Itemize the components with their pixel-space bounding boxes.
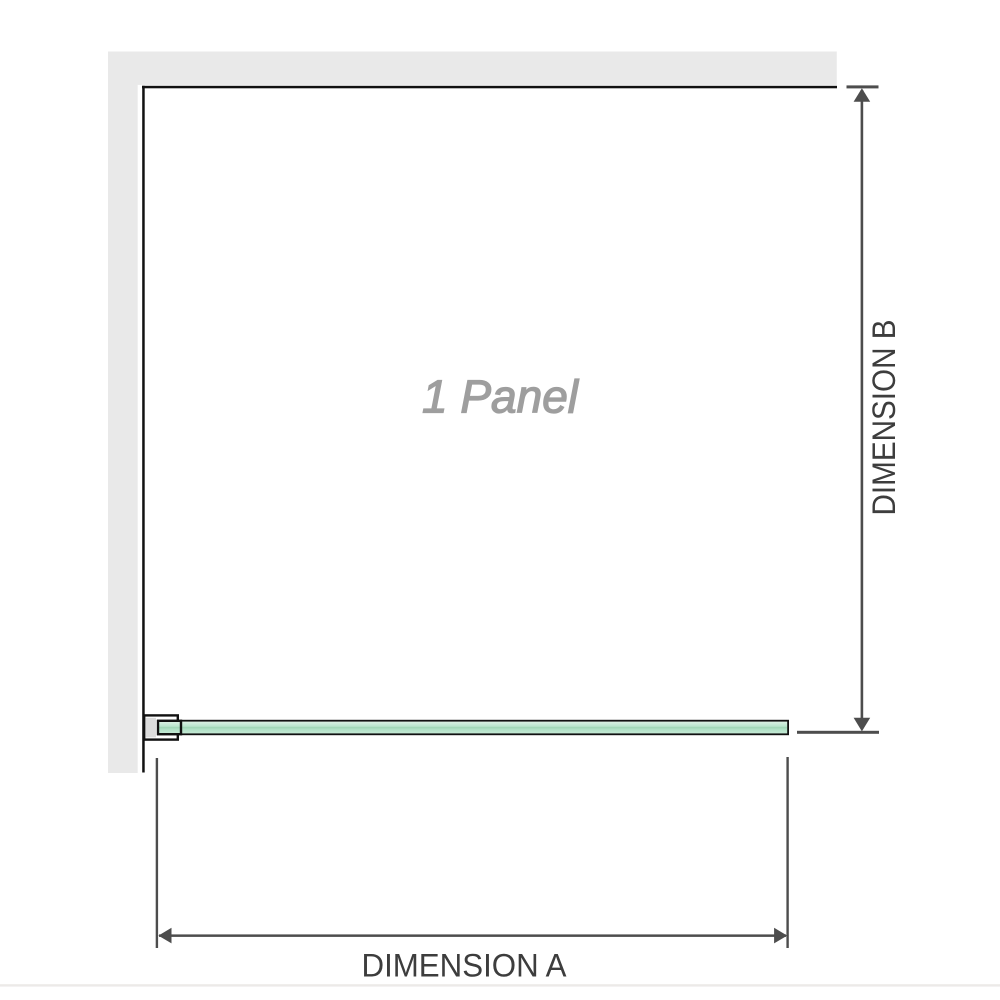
svg-text:DIMENSION B: DIMENSION B [866, 320, 902, 516]
svg-text:DIMENSION A: DIMENSION A [362, 948, 568, 984]
svg-text:1 Panel: 1 Panel [422, 371, 580, 423]
